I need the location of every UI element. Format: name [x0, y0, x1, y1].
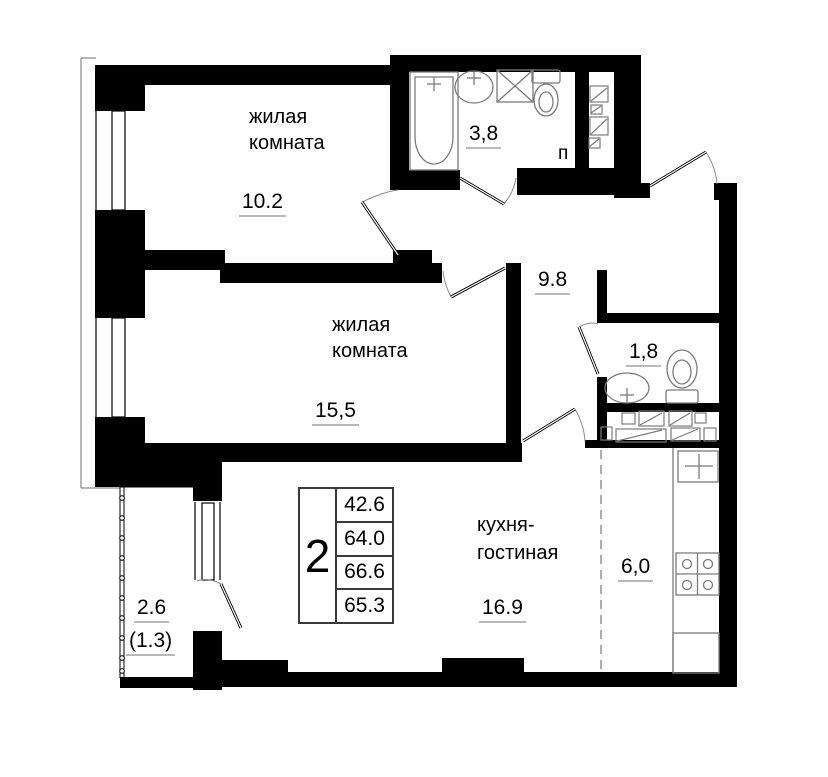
area-values-column: 42.6 64.0 66.6 65.3 — [337, 489, 392, 622]
washing-machine-icon — [497, 70, 533, 102]
area-value-cell: 65.3 — [337, 590, 392, 622]
room-living1-name-line2: комната — [249, 130, 325, 156]
apartment-info-table: 2 42.6 64.0 66.6 65.3 — [298, 487, 394, 624]
kitchen-living-label: кухня- гостиная — [477, 511, 558, 567]
kitchen-unit-icon — [673, 633, 719, 673]
bathroom-door — [460, 178, 516, 204]
floor-plan: жилая комната 10.2 жилая комната 15,5 3,… — [0, 0, 828, 777]
kitchen-living-name-line1: кухня- — [477, 511, 558, 539]
vent-shaft-icons — [589, 86, 608, 148]
balcony-door — [197, 580, 241, 628]
kitchen-living-area: 16.9 — [479, 596, 526, 623]
bathtub-icon — [410, 72, 458, 170]
wc-door — [579, 323, 598, 374]
wc-sink-icon — [605, 373, 649, 403]
balcony-window-icon — [195, 502, 220, 580]
wc-toilet-icon — [666, 350, 698, 403]
rooms-count-cell: 2 — [300, 489, 337, 622]
floor-plan-graphics — [0, 0, 828, 777]
duct-label: п — [558, 143, 568, 165]
area-value-cell: 64.0 — [337, 523, 392, 557]
room-living1-area: 10.2 — [239, 190, 286, 217]
vent-niche-icons — [601, 411, 716, 442]
bathroom-area: 3,8 — [466, 122, 501, 149]
walls — [95, 55, 737, 690]
area-value-cell: 66.6 — [337, 557, 392, 591]
entrance-door — [650, 152, 717, 186]
balcony-area: 2.6 — [134, 596, 169, 623]
wc-area: 1,8 — [626, 340, 661, 367]
bath-toilet-icon — [532, 70, 560, 116]
room2-door — [443, 268, 505, 297]
room-living2-area: 15,5 — [312, 399, 359, 426]
hallway-area: 9.8 — [535, 268, 570, 295]
balcony-area-coef: (1.3) — [126, 629, 175, 656]
kitchen-door — [523, 409, 585, 441]
kitchen-zone-area: 6,0 — [618, 555, 653, 582]
kitchen-living-name-line2: гостиная — [477, 539, 558, 567]
bath-sink-icon — [455, 71, 493, 103]
room-living2-name-line2: комната — [332, 338, 408, 364]
room-living1-label: жилая комната — [249, 104, 325, 156]
area-value-cell: 42.6 — [337, 489, 392, 523]
room1-door — [362, 190, 398, 255]
room-living2-label: жилая комната — [332, 312, 408, 364]
stove-icon — [676, 553, 719, 595]
kitchen-sink-icon — [678, 451, 718, 482]
room-living1-name-line1: жилая — [249, 104, 325, 130]
room-living2-name-line1: жилая — [332, 312, 408, 338]
